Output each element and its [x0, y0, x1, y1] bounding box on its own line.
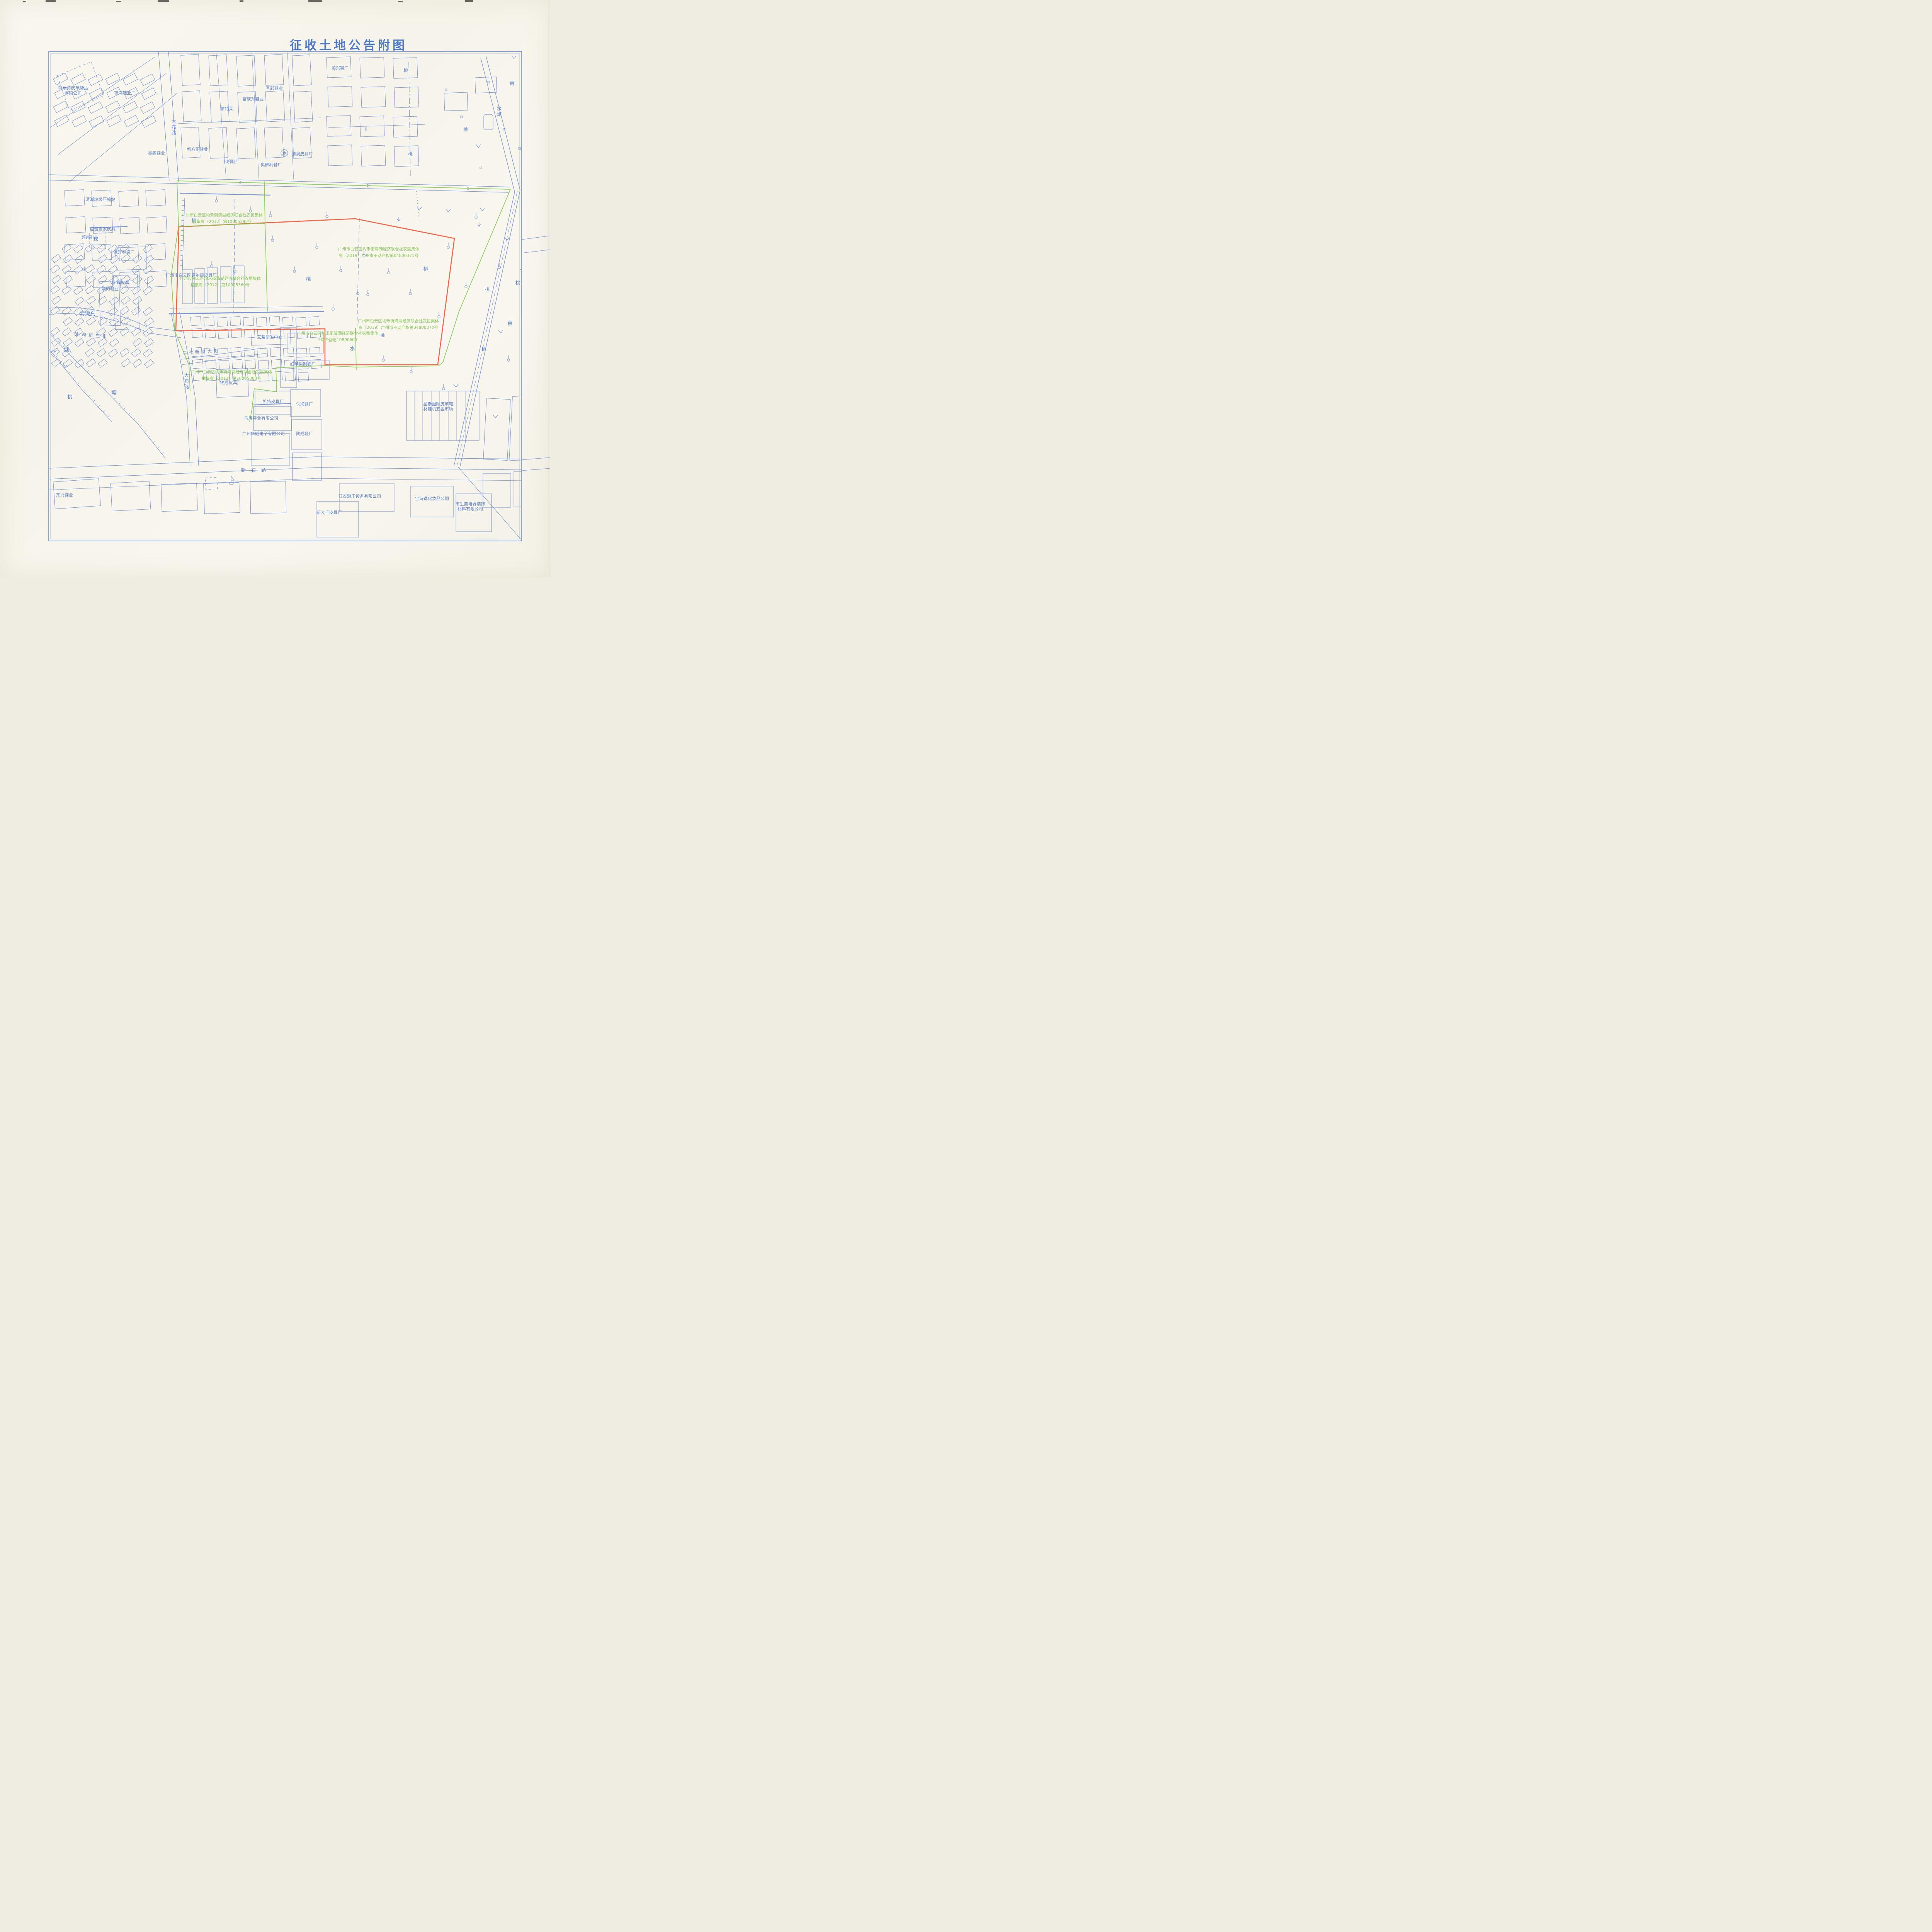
map-label: 顺兴鞋厂 [332, 65, 349, 71]
map-canvas: 荷乐诗皮革制品有限公司锦鸿鞋业厂吴鑫鞋业新方正鞋业蒙特莱圣彩鞋业富荻升鞋业顺兴鞋… [0, 0, 551, 577]
map-label: 桃 [481, 346, 486, 352]
map-label: 材鞋机五金市场 [423, 406, 453, 412]
map-label: 球 [94, 236, 98, 242]
map-label: 蒙特莱 [221, 106, 233, 111]
map-label: 红苹果制衣厂 [290, 361, 316, 367]
map-label: 宇辉皮具厂 [112, 280, 134, 285]
map-label: 新大千皮具厂 [316, 510, 342, 515]
map-label: 宝诗逸化妆品公司 [415, 496, 449, 501]
certificate-label: 广州市白云区均禾街清湖经济联合社农民集体 [180, 276, 261, 281]
map-label: ‖ [365, 127, 367, 131]
scan-artifact [23, 1, 26, 2]
map-label: 水 [350, 346, 355, 352]
map-label: 水 [282, 151, 287, 156]
map-label: 桃 [68, 394, 72, 400]
scan-artifact [240, 0, 243, 2]
map-label: 圣彩鞋业 [266, 85, 283, 91]
map-label: 苗 [507, 320, 513, 327]
map-label: 材料有限公司 [457, 506, 483, 512]
scan-artifact [308, 0, 322, 2]
certificate-number: 穗集有（2012）第10005360号 [190, 282, 250, 287]
certificate-number: 穗集有（2012）第10005383号 [202, 376, 261, 381]
map-label: 吴鑫鞋业 [148, 150, 165, 156]
map-label: 芭蕾世家皮具厂 [90, 226, 120, 231]
scan-artifact [158, 0, 169, 2]
certificate-number: 粤（2019）广州市不动产权第04800371号 [339, 253, 418, 258]
map-label: 市生美电器装饰 [456, 501, 485, 507]
certificate-label: 广州市白云区均禾街清湖经济联合社农民集体 [358, 318, 439, 323]
paper-crease [548, 0, 549, 577]
map-label: 桃 [306, 277, 311, 282]
map-label: 桃 [463, 126, 468, 132]
map-label: 新方正鞋业 [187, 146, 208, 152]
certificate-labels: 广州市白云区均禾街清湖经济联合社农民集体穗集有（2012）第10005293号广… [180, 213, 439, 381]
map-label: 亿顺鞋厂 [296, 401, 313, 407]
map-label: 有限公司 [65, 90, 82, 96]
map-label: 桃 [515, 280, 520, 286]
map-label: 诚升手袋厂 [114, 249, 135, 255]
map-sheet: 征收土地公告附图 荷乐诗皮革制品有限公司锦鸿鞋业厂吴鑫鞋业新方正鞋业蒙特莱圣彩鞋… [0, 0, 551, 577]
map-linework [49, 51, 546, 541]
map-label: 苗 [509, 80, 515, 87]
map-labels: 荷乐诗皮革制品有限公司锦鸿鞋业厂吴鑫鞋业新方正鞋业蒙特莱圣彩鞋业富荻升鞋业顺兴鞋… [56, 65, 520, 515]
certificate-number: 2019登记10800603 [318, 337, 357, 342]
scan-artifact [46, 0, 56, 2]
map-label: 塘 [111, 390, 117, 396]
green-parcel-boundary [250, 366, 438, 422]
map-label: 塘 [64, 347, 69, 353]
certificate-number: 穗集有（2012）第10005293号 [192, 219, 252, 224]
certificate-label: 广州市白云区均禾街清湖经济联合社农民集体 [338, 247, 419, 252]
map-label: 奥佛利鞋厂 [261, 162, 282, 167]
map-label: 清湖村 [80, 311, 96, 317]
certificate-label: 广州市白云区均禾街清湖经济联合社农民集体 [182, 213, 263, 218]
map-label: 韦明鞋厂 [223, 159, 240, 164]
scan-artifact [465, 0, 473, 2]
map-label: 锦鸿鞋业厂 [114, 90, 136, 95]
map-label: 广州华威电子有限公司 [242, 431, 285, 436]
map-label: 江泰游乐设备有限公司 [338, 493, 381, 499]
green-parcel-boundary [179, 223, 267, 311]
map-label: 星泰国际皮革鞋 [423, 401, 453, 406]
map-label: 富荻升鞋业 [243, 96, 264, 102]
map-label: 大布路 [184, 372, 189, 389]
map-label: 凯特皮具厂 [263, 399, 284, 404]
map-label: 大布路 [172, 119, 176, 136]
map-label: 桃 [403, 67, 408, 73]
certificate-label: 广州市白云区均禾街清湖经济联合社农民集体 [297, 331, 378, 336]
map-label: 荷乐诗皮革制品 [58, 85, 88, 90]
certificate-label: 广州市白云区均禾街清湖经济联合社农民集体 [191, 369, 272, 374]
map-label: 艾蒂研发中心 [257, 334, 282, 340]
map-label: 桃 [380, 332, 385, 338]
map-label: 靓的鞋业 [102, 286, 119, 291]
map-label: 二社新屋大街 [182, 348, 220, 355]
map-label: 桃 [408, 151, 413, 157]
map-label: 新石路 [241, 467, 271, 473]
map-label: 桃 [485, 286, 490, 292]
map-label: 清湖垃圾压缩站 [86, 197, 116, 202]
scan-artifact [398, 1, 403, 2]
map-label: 东兴鞋业 [56, 492, 73, 498]
map-frame [49, 51, 550, 541]
scan-artifact [116, 1, 121, 2]
certificate-number: 粤（2019）广州市不动产权第04800370号 [359, 325, 438, 330]
map-label: 桃 [423, 267, 428, 272]
green-parcel-boundary [264, 182, 265, 223]
map-label: 聚成鞋厂 [296, 431, 313, 436]
map-label: 骑骏皮具厂 [292, 151, 313, 156]
map-label: 伯胜鞋业有限公司 [244, 415, 278, 421]
map-label: 水塘 [497, 106, 502, 117]
